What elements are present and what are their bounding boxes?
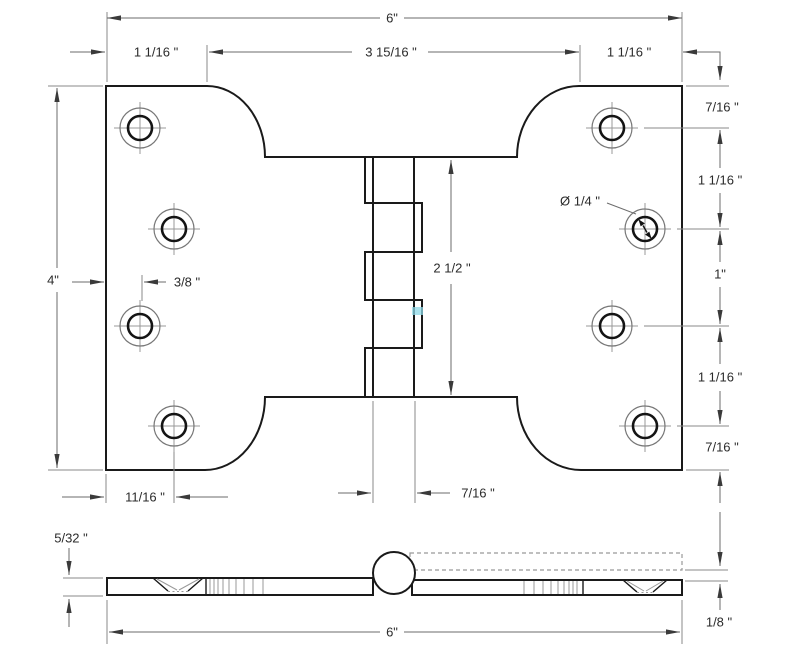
screw-hole xyxy=(586,300,638,352)
dimension-knuckle-height: 2 1/2 " xyxy=(433,160,471,395)
side-width-label: 6" xyxy=(386,625,398,640)
hinge-technical-drawing: 6" 1 1/16 " 3 15/16 " 1 1/16 " 4" 3/8 " … xyxy=(0,0,788,651)
screw-hole xyxy=(114,102,166,154)
hole-diameter-label: Ø 1/4 " xyxy=(560,194,600,209)
top-span-right-label: 1 1/16 " xyxy=(607,45,652,60)
hinge-knuckle xyxy=(365,157,423,397)
dimension-hole-column-offset: 11/16 " xyxy=(62,452,228,505)
dimension-right-chain: 7/16 " 1 1/16 " 1" 1 1/16 " 7/16 " xyxy=(644,86,743,566)
drawing-page: 6" 1 1/16 " 3 15/16 " 1 1/16 " 4" 3/8 " … xyxy=(0,0,788,651)
screw-hole xyxy=(148,400,200,452)
overall-height-label: 4" xyxy=(47,273,59,288)
dimension-thickness: 5/32 " xyxy=(54,531,103,628)
hole-column-offset-label: 11/16 " xyxy=(125,490,165,505)
top-span-center-label: 3 15/16 " xyxy=(365,45,417,60)
callout-hole-diameter: Ø 1/4 " xyxy=(560,194,636,215)
hinge-side-view xyxy=(107,552,682,595)
screw-hole xyxy=(148,203,200,255)
dimension-overall-height: 4" xyxy=(47,86,103,470)
dimension-leaf-offset: 1/8 " xyxy=(685,570,733,630)
right-chain-label-5: 7/16 " xyxy=(705,440,739,455)
side-leaf-hidden-position xyxy=(410,553,682,570)
leaf-offset-label: 1/8 " xyxy=(706,615,733,630)
right-chain-label-3: 1" xyxy=(714,267,726,282)
right-chain-label-1: 7/16 " xyxy=(705,100,739,115)
hole-edge-offset-label: 3/8 " xyxy=(174,275,201,290)
right-chain-label-4: 1 1/16 " xyxy=(698,370,743,385)
side-knuckle-barrel xyxy=(373,552,415,594)
knuckle-width-label: 7/16 " xyxy=(461,486,495,501)
overall-width-label: 6" xyxy=(386,11,398,26)
dimension-knuckle-width: 7/16 " xyxy=(338,401,495,503)
watermark-artifact xyxy=(412,307,423,315)
screw-hole xyxy=(619,400,671,452)
screw-hole xyxy=(586,102,638,154)
thickness-label: 5/32 " xyxy=(54,531,88,546)
dimension-hole-edge-offset: 3/8 " xyxy=(72,275,201,302)
knuckle-height-label: 2 1/2 " xyxy=(433,261,471,276)
top-span-left-label: 1 1/16 " xyxy=(134,45,179,60)
dimension-top-spans: 1 1/16 " 3 15/16 " 1 1/16 " xyxy=(70,45,720,83)
dimension-side-width: 6" xyxy=(107,600,682,644)
screw-hole xyxy=(114,300,166,352)
right-chain-label-2: 1 1/16 " xyxy=(698,173,743,188)
side-left-leaf xyxy=(107,578,373,595)
